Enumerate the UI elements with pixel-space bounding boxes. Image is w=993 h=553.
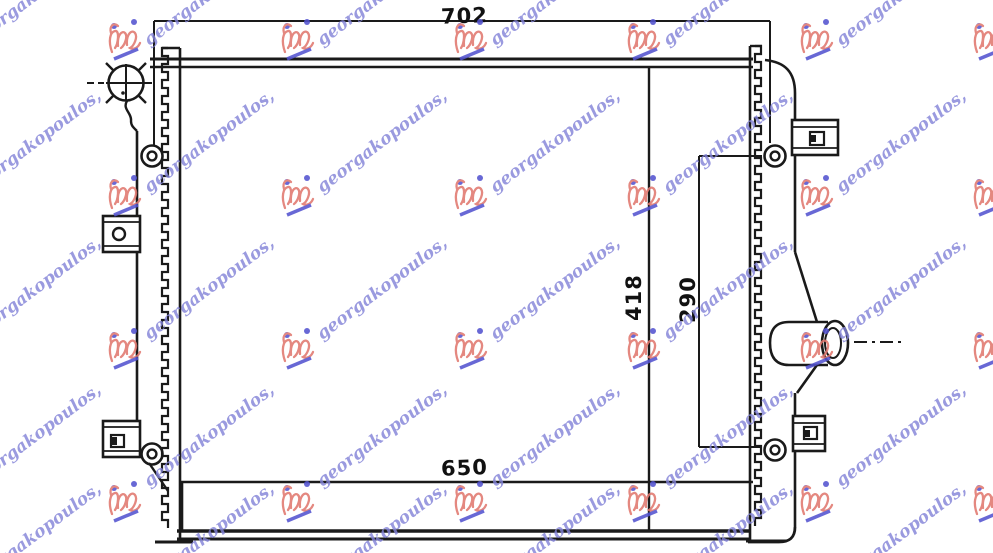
left-lower-bracket xyxy=(103,421,140,457)
left-side-plate xyxy=(155,48,193,542)
bolt-bottom-right xyxy=(765,440,786,461)
right-side-plate xyxy=(746,46,786,541)
bolt-top-right xyxy=(765,146,786,167)
dimension-label-mount-span: 290 xyxy=(676,277,700,323)
right-upper-bracket xyxy=(792,120,838,155)
cap-drip-line xyxy=(126,101,137,131)
dimension-label-top-width: 702 xyxy=(441,3,486,29)
filler-cap xyxy=(87,63,152,131)
dim-line-290 xyxy=(699,156,762,447)
outlet-pipe xyxy=(770,321,903,365)
left-upper-bracket xyxy=(103,216,140,252)
bolt-bottom-left xyxy=(142,444,163,465)
radiator-drawing-page: 702 650 418 290 xyxy=(0,0,993,553)
bolt-top-left xyxy=(142,146,163,167)
top-tank xyxy=(150,59,795,120)
bottom-tank xyxy=(177,482,750,539)
dimension-label-bottom-width: 650 xyxy=(441,455,486,481)
radiator-drawing xyxy=(0,0,993,553)
right-lower-bracket xyxy=(793,416,825,451)
dimension-label-core-height: 418 xyxy=(622,275,646,321)
